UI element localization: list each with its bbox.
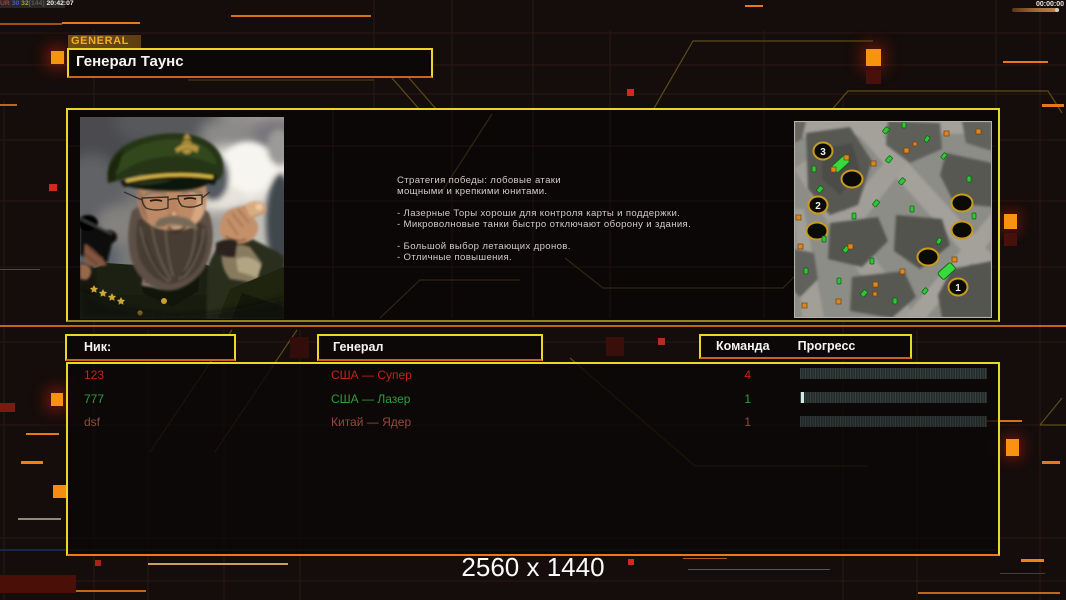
svg-text:2: 2 bbox=[815, 201, 821, 212]
svg-text:3: 3 bbox=[820, 147, 826, 158]
svg-text:1: 1 bbox=[955, 283, 961, 294]
